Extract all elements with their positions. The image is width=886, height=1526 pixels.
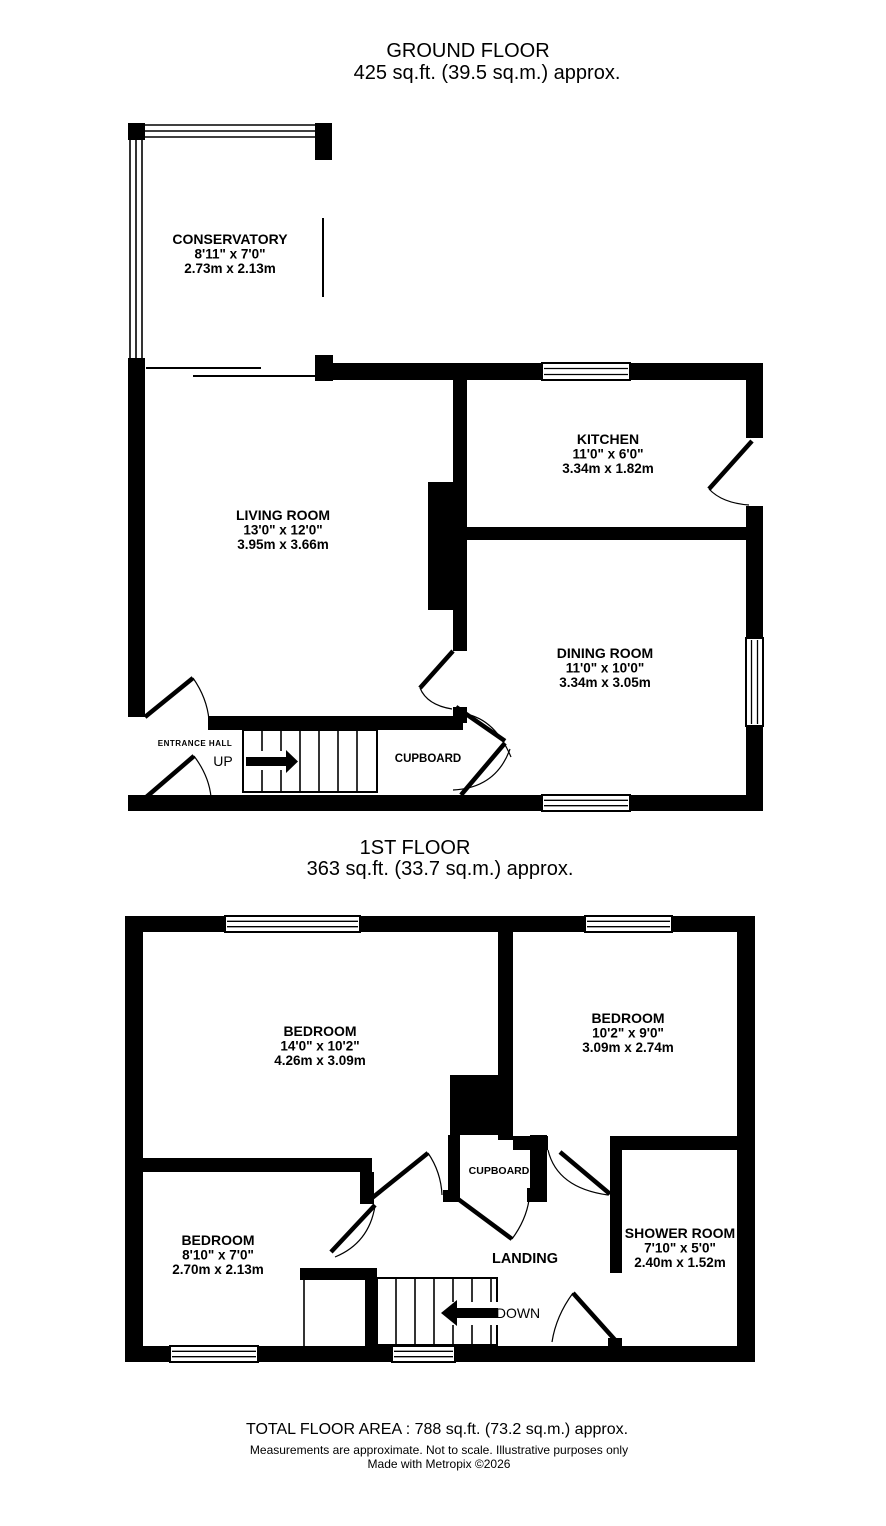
first-floor-area-text: 363 sq.ft. (33.7 sq.m.) approx.	[307, 858, 574, 880]
bedroom-small-window	[170, 1346, 258, 1362]
bedroom-rear-window	[585, 916, 672, 932]
room-label-bedroom-small: BEDROOM 8'10" x 7'0" 2.70m x 2.13m	[172, 1232, 264, 1277]
room-label-bedroom-rear: BEDROOM 10'2" x 9'0" 3.09m x 2.74m	[582, 1010, 674, 1055]
room-label-living-room: LIVING ROOM 13'0" x 12'0" 3.95m x 3.66m	[236, 507, 330, 552]
up-label: UP	[213, 753, 232, 769]
first-cupboard-label: CUPBOARD	[469, 1165, 530, 1177]
dining-room-name: DINING ROOM	[557, 645, 653, 661]
credit: Made with Metropix ©2026	[368, 1457, 511, 1471]
disclaimer: Measurements are approximate. Not to sca…	[250, 1443, 628, 1457]
shower-room-name: SHOWER ROOM	[625, 1225, 735, 1241]
living-room-imperial: 13'0" x 12'0"	[243, 523, 322, 538]
total-floor-area: TOTAL FLOOR AREA : 788 sq.ft. (73.2 sq.m…	[246, 1421, 628, 1438]
dining-room-metric: 3.34m x 3.05m	[559, 675, 651, 690]
entrance-hall-label: ENTRANCE HALL	[158, 739, 233, 748]
room-label-dining-room: DINING ROOM 11'0" x 10'0" 3.34m x 3.05m	[557, 645, 653, 690]
kitchen-window	[542, 363, 630, 380]
bedroom-small-imperial: 8'10" x 7'0"	[182, 1248, 254, 1263]
kitchen-name: KITCHEN	[577, 431, 639, 447]
living-room-metric: 3.95m x 3.66m	[237, 537, 329, 552]
conservatory-name: CONSERVATORY	[172, 231, 288, 247]
ground-floor-title-text: GROUND FLOOR	[386, 40, 549, 62]
bedroom-small-name: BEDROOM	[181, 1232, 254, 1248]
floorplan-drawing: GROUND FLOOR 425 sq.ft. (39.5 sq.m.) app…	[0, 0, 886, 1526]
kitchen-metric: 3.34m x 1.82m	[562, 461, 654, 476]
up-arrow	[246, 757, 286, 766]
conservatory-imperial: 8'11" x 7'0"	[194, 247, 265, 262]
living-room-name: LIVING ROOM	[236, 507, 330, 523]
bedroom-rear-name: BEDROOM	[591, 1010, 664, 1026]
room-label-bedroom-main: BEDROOM 14'0" x 10'2" 4.26m x 3.09m	[274, 1023, 366, 1068]
bedroom-main-window	[225, 916, 360, 932]
dining-room-window	[746, 638, 763, 726]
stairs-up	[243, 730, 377, 792]
down-label: DOWN	[496, 1305, 540, 1321]
stairs-down	[377, 1278, 498, 1345]
shower-room-imperial: 7'10" x 5'0"	[644, 1241, 716, 1256]
chimney-breast	[428, 482, 454, 610]
bedroom-small-metric: 2.70m x 2.13m	[172, 1262, 264, 1277]
landing-label: LANDING	[492, 1251, 558, 1267]
floorplan-page: GROUND FLOOR 425 sq.ft. (39.5 sq.m.) app…	[0, 0, 886, 1526]
shower-room-metric: 2.40m x 1.52m	[634, 1255, 726, 1270]
kitchen-imperial: 11'0" x 6'0"	[572, 447, 643, 462]
conservatory-metric: 2.73m x 2.13m	[184, 261, 276, 276]
bedroom-main-imperial: 14'0" x 10'2"	[280, 1039, 359, 1054]
ground-floor-area-text: 425 sq.ft. (39.5 sq.m.) approx.	[354, 62, 621, 84]
bedroom-rear-imperial: 10'2" x 9'0"	[592, 1026, 664, 1041]
dining-room-imperial: 11'0" x 10'0"	[566, 661, 645, 676]
first-floor-title-text: 1ST FLOOR	[360, 837, 471, 859]
chimney-breast-first	[450, 1075, 513, 1135]
bedroom-rear-metric: 3.09m x 2.74m	[582, 1040, 674, 1055]
ground-cupboard-label: CUPBOARD	[395, 753, 461, 765]
dining-room-rear-window	[542, 795, 630, 811]
stairwell-window	[392, 1346, 455, 1362]
bedroom-main-metric: 4.26m x 3.09m	[274, 1053, 366, 1068]
bedroom-main-name: BEDROOM	[283, 1023, 356, 1039]
down-arrow	[457, 1308, 498, 1318]
